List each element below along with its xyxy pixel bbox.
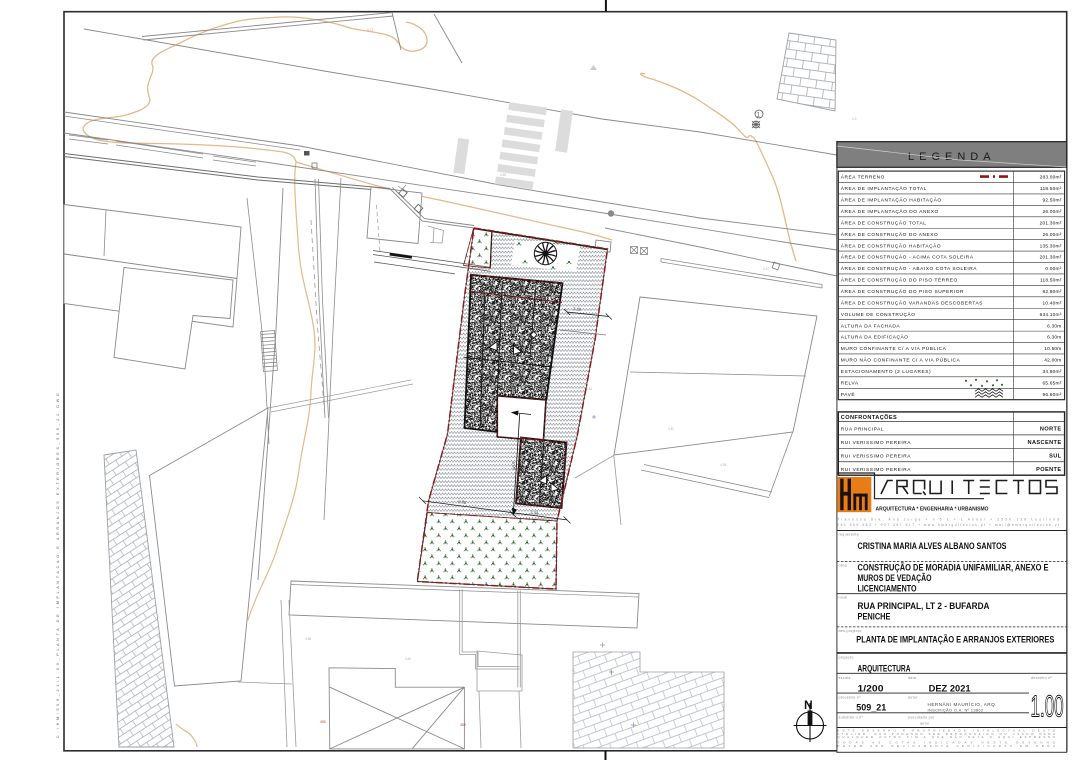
svg-text:1/200: 1/200: [858, 684, 884, 694]
svg-text:N: N: [804, 698, 813, 712]
svg-text:data: data: [908, 676, 916, 680]
svg-text:desenho nº: desenho nº: [1031, 676, 1052, 680]
svg-text:ÁREA DE IMPLANTAÇÃO TOTAL: ÁREA DE IMPLANTAÇÃO TOTAL: [841, 185, 927, 192]
svg-text:ALTURA DA EDIFICAÇÃO: ALTURA DA EDIFICAÇÃO: [841, 334, 909, 341]
svg-text:4.55: 4.55: [500, 173, 506, 177]
svg-text:4.58: 4.58: [305, 637, 311, 641]
svg-text:4.45: 4.45: [586, 387, 592, 391]
svg-text:obra: obra: [839, 564, 847, 568]
svg-text:NORTE: NORTE: [1040, 426, 1062, 432]
svg-text:118.50m²: 118.50m²: [1040, 278, 1062, 284]
svg-text:6.30m: 6.30m: [1047, 323, 1061, 329]
svg-text:3.44: 3.44: [530, 510, 539, 516]
svg-text:34.80m²: 34.80m²: [1043, 369, 1062, 375]
svg-text:executado por: executado por: [908, 715, 935, 719]
svg-text:autor: autor: [908, 696, 918, 700]
svg-text:ARQUITECTURA: ARQUITECTURA: [858, 664, 911, 674]
svg-text:RUI VERISSIMO PEREIRA: RUI VERISSIMO PEREIRA: [841, 467, 911, 473]
svg-text:MUROS DE VEDAÇÃO: MUROS DE VEDAÇÃO: [858, 573, 932, 583]
svg-text:92.50m²: 92.50m²: [1043, 198, 1062, 204]
svg-text:4.38: 4.38: [720, 463, 726, 467]
svg-text:82.80m²: 82.80m²: [1043, 289, 1062, 295]
svg-text:CONSTRUÇÃO DE MORADIA UNIFAMIL: CONSTRUÇÃO DE MORADIA UNIFAMILIAR, ANEXO…: [858, 563, 1049, 573]
svg-text:201.30m²: 201.30m²: [1040, 220, 1062, 226]
svg-text:26.00m²: 26.00m²: [1043, 209, 1062, 215]
svg-text:local: local: [839, 596, 848, 600]
svg-text:RUI VERISSIMO PEREIRA: RUI VERISSIMO PEREIRA: [841, 440, 911, 446]
svg-text:ÁREA DE CONSTRUÇÃO - ACIMA COT: ÁREA DE CONSTRUÇÃO - ACIMA COTA SOLEIRA: [841, 254, 974, 261]
svg-text:RUA PRINCIPAL: RUA PRINCIPAL: [841, 426, 884, 432]
svg-text:Travessa Dra. Ana Jorge + n 5: Travessa Dra. Ana Jorge + n 5 1 + 1 Anda…: [837, 518, 1059, 522]
svg-text:LICENCIAMENTO: LICENCIAMENTO: [858, 584, 917, 594]
svg-text:634.10m³: 634.10m³: [1040, 312, 1062, 318]
svg-text:4.59: 4.59: [214, 137, 220, 141]
svg-text:10.50m: 10.50m: [1044, 346, 1061, 352]
svg-text:0.00m²: 0.00m²: [1045, 266, 1061, 272]
svg-text:ARQUITECTURA * ENGENHARIA * UR: ARQUITECTURA * ENGENHARIA * URBANISMO: [876, 507, 989, 513]
svg-text:459: 459: [320, 720, 326, 724]
svg-text:projecto: projecto: [839, 655, 854, 659]
svg-text:ALTURA DA FACHADA: ALTURA DA FACHADA: [841, 323, 901, 329]
svg-text:autor: autor: [920, 721, 930, 725]
svg-text:8.50: 8.50: [458, 499, 467, 505]
svg-text:ÁREA DE IMPLANTAÇÃO HABITAÇÃO: ÁREA DE IMPLANTAÇÃO HABITAÇÃO: [841, 197, 942, 204]
svg-text:requerente: requerente: [839, 533, 859, 537]
svg-text:PENICHE: PENICHE: [858, 612, 891, 622]
svg-text:CONFRONTAÇÕES: CONFRONTAÇÕES: [841, 414, 897, 421]
svg-text:HERNÂNI MAURÍCIO, ARQ.: HERNÂNI MAURÍCIO, ARQ.: [928, 701, 997, 707]
svg-text:DEZ 2021: DEZ 2021: [929, 684, 971, 694]
svg-text:4.3: 4.3: [852, 117, 857, 121]
svg-text:1.00: 1.00: [1031, 689, 1064, 724]
svg-text:RELVA: RELVA: [841, 380, 859, 386]
svg-text:5.90: 5.90: [511, 462, 517, 471]
svg-text:des.projecto: des.projecto: [839, 629, 862, 633]
svg-text:4.40: 4.40: [668, 427, 674, 431]
svg-text:escala: escala: [839, 676, 851, 680]
svg-text:substitui o nº: substitui o nº: [839, 715, 864, 719]
svg-text:509_21: 509_21: [856, 703, 886, 713]
svg-text:ÁREA DE CONSTRUÇÃO HABITAÇÃO: ÁREA DE CONSTRUÇÃO HABITAÇÃO: [841, 242, 941, 249]
svg-text:4.62: 4.62: [350, 183, 356, 187]
svg-text:4.60: 4.60: [405, 657, 411, 661]
svg-text:10.40m²: 10.40m²: [1043, 300, 1062, 306]
svg-text:96.60m²: 96.60m²: [1043, 392, 1062, 398]
svg-text:RUI VERISSIMO PEREIRA: RUI VERISSIMO PEREIRA: [841, 453, 911, 459]
svg-text:4.42: 4.42: [763, 267, 769, 271]
svg-text:RUA PRINCIPAL, LT 2 - BUFARDA: RUA PRINCIPAL, LT 2 - BUFARDA: [858, 601, 990, 611]
svg-text:4.71: 4.71: [367, 28, 373, 32]
svg-text:201.30m²: 201.30m²: [1040, 255, 1062, 261]
svg-text:6.30m: 6.30m: [1047, 335, 1061, 341]
svg-text:ÁREA DE CONSTRUÇÃO DO PISO SUP: ÁREA DE CONSTRUÇÃO DO PISO SUPERIOR: [841, 288, 964, 295]
svg-text:ÁREA DE IMPLANTAÇÃO DO ANEXO: ÁREA DE IMPLANTAÇÃO DO ANEXO: [841, 208, 939, 215]
svg-text:ÁREA DE CONSTRUÇÃO TOTAL: ÁREA DE CONSTRUÇÃO TOTAL: [841, 219, 927, 226]
svg-text:processo nº: processo nº: [839, 696, 862, 700]
svg-text:VOLUME DE CONSTRUÇÃO: VOLUME DE CONSTRUÇÃO: [841, 311, 916, 318]
svg-text:ÁREA DE CONSTRUÇÃO DO ANEXO: ÁREA DE CONSTRUÇÃO DO ANEXO: [841, 231, 938, 238]
svg-text:283.00m²: 283.00m²: [1040, 175, 1062, 181]
svg-text:135.30m²: 135.30m²: [1040, 243, 1062, 249]
svg-text:118.50m²: 118.50m²: [1040, 186, 1062, 192]
svg-text:65.65m²: 65.65m²: [1043, 380, 1062, 386]
svg-text:SUL: SUL: [1049, 453, 1062, 459]
svg-text:ÁREA DE CONSTRUÇÃO - ABAIXO CO: ÁREA DE CONSTRUÇÃO - ABAIXO COTA SOLEIRA: [841, 265, 978, 272]
svg-text:ESTACIONAMENTO (2 LUGARES): ESTACIONAMENTO (2 LUGARES): [841, 369, 931, 375]
svg-text:3.26: 3.26: [573, 306, 582, 312]
svg-text:MURO CONFINANTE C/ A VIA PÚBLI: MURO CONFINANTE C/ A VIA PÚBLICA: [841, 345, 947, 352]
svg-text:26.00m²: 26.00m²: [1043, 232, 1062, 238]
svg-text:261 459 483 + 917 367 617 + ww: 261 459 483 + 917 367 617 + www.hmarquit…: [837, 523, 1059, 527]
svg-text:458: 458: [460, 723, 466, 727]
svg-text:INSCRIÇÃO O.A. Nº 13862: INSCRIÇÃO O.A. Nº 13862: [928, 708, 984, 713]
svg-text:PLANTA DE IMPLANTAÇÃO E ARRANJ: PLANTA DE IMPLANTAÇÃO E ARRANJOS EXTERIO…: [856, 635, 1054, 645]
svg-text:MURO NÃO CONFINANTE C/ A VIA P: MURO NÃO CONFINANTE C/ A VIA PÚBLICA: [841, 357, 961, 364]
svg-text:CRISTINA MARIA ALVES ALBANO SA: CRISTINA MARIA ALVES ALBANO SANTOS: [858, 541, 1007, 551]
svg-text:42.00m: 42.00m: [1044, 358, 1061, 364]
svg-text:POENTE: POENTE: [1036, 467, 1061, 473]
svg-text:ÁREA TERRENO: ÁREA TERRENO: [841, 174, 885, 181]
svg-text:NASCENTE: NASCENTE: [1028, 440, 1062, 446]
svg-text:ÁREA DE CONSTRUÇÃO VARANDAS DE: ÁREA DE CONSTRUÇÃO VARANDAS DESCOBERTAS: [841, 299, 983, 306]
svg-text:C:\HM\509_21\1.00_PLANTA DE IM: C:\HM\509_21\1.00_PLANTA DE IMPLANTACAO …: [56, 393, 60, 738]
svg-text:ÁREA DE CONSTRUÇÃO DO PISO TÉR: ÁREA DE CONSTRUÇÃO DO PISO TÉRREO: [841, 277, 958, 284]
